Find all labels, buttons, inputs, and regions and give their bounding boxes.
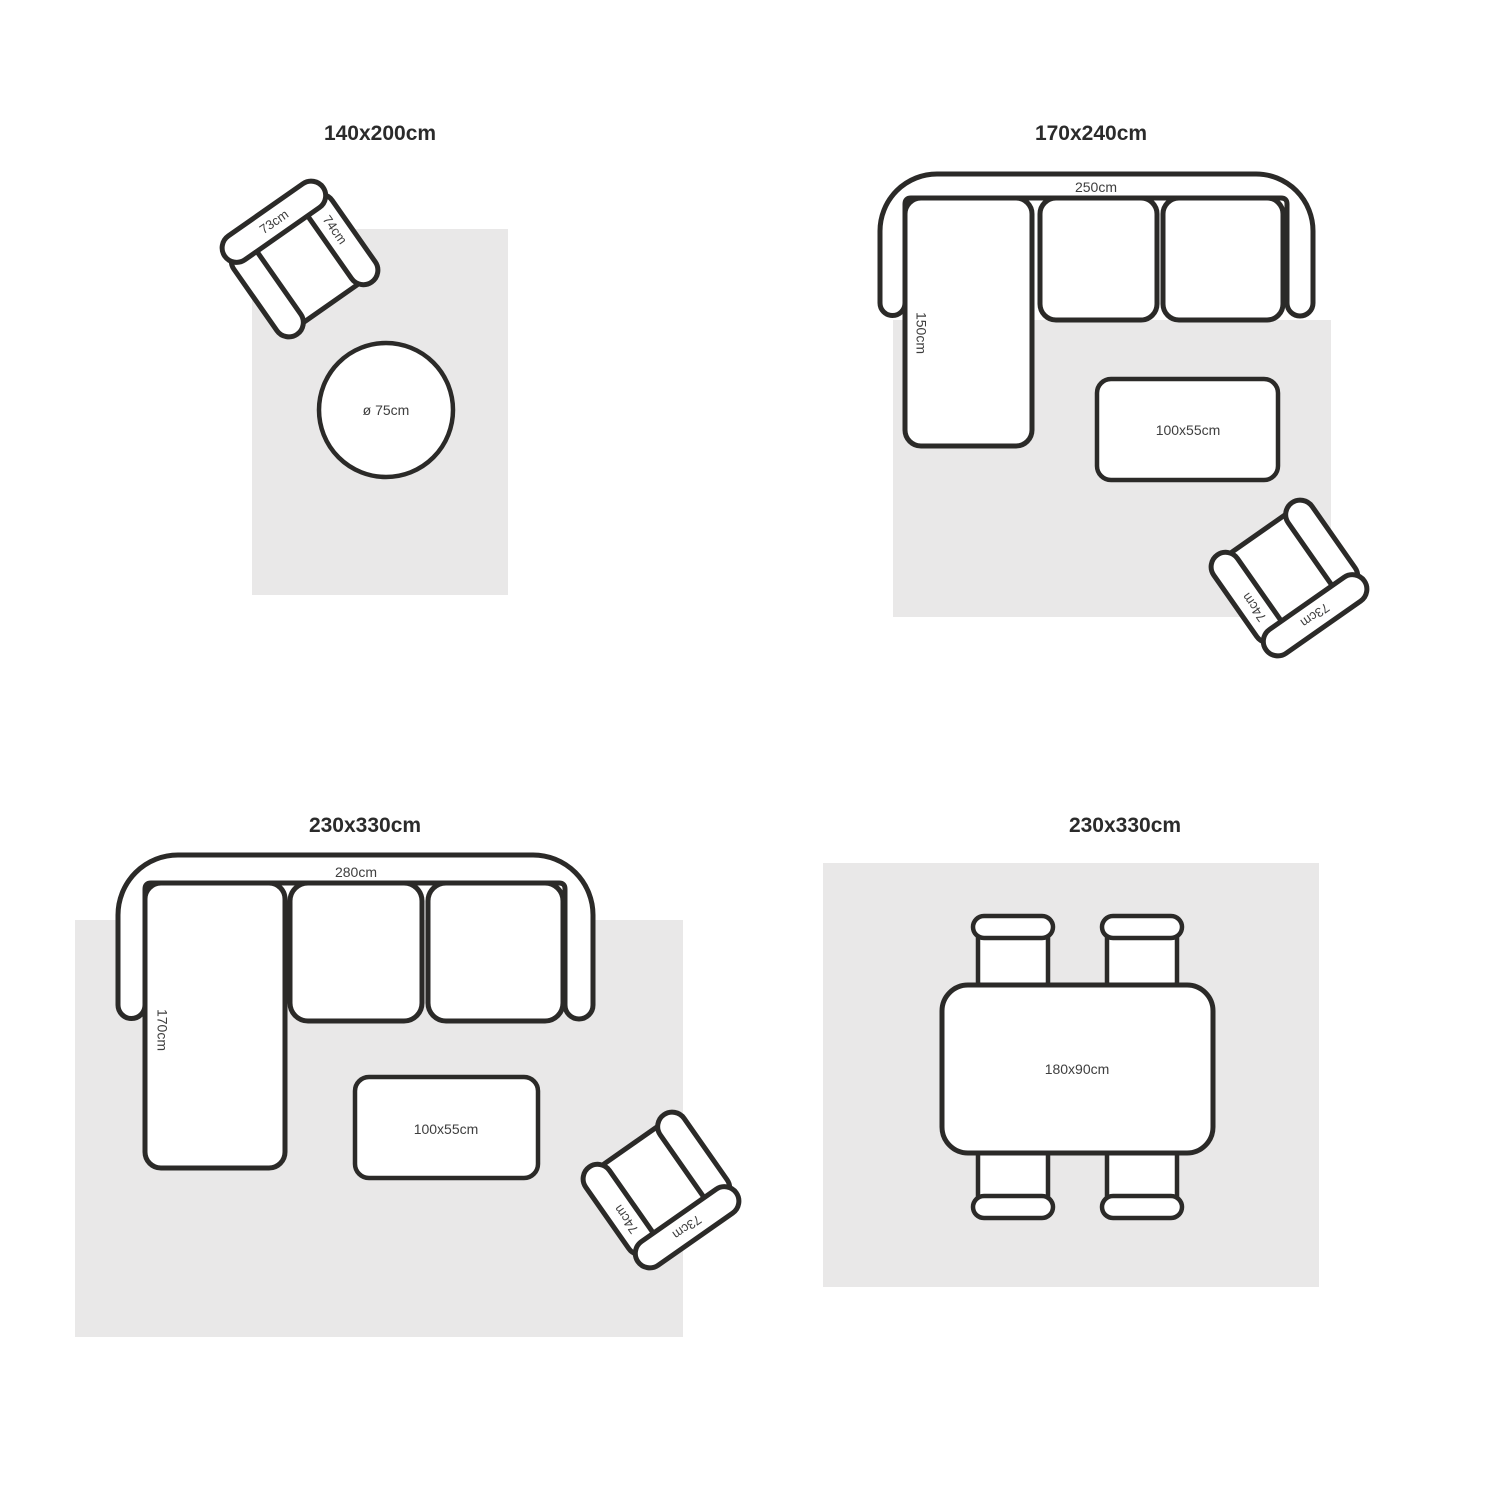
sofa-width-dimension: 280cm — [335, 864, 377, 880]
coffee-table-dimension: 100x55cm — [1156, 422, 1221, 438]
layout-title: 230x330cm — [1069, 814, 1181, 837]
sofa-depth-dimension: 170cm — [155, 1009, 171, 1051]
dining-chair — [1102, 1146, 1182, 1218]
layout-170x240: 170x240cm 100x55cm 250cm 150cm — [880, 122, 1373, 662]
layout-title: 140x200cm — [324, 122, 436, 145]
dining-chair — [1102, 916, 1182, 988]
sofa-cushion — [428, 883, 563, 1021]
sofa-cushion — [1163, 198, 1283, 320]
sofa-width-dimension: 250cm — [1075, 179, 1117, 195]
sofa-cushion — [290, 883, 422, 1021]
rug-size-guide-diagram: 73cm 74cm 140x200cm ø 75cm 170x240cm 100… — [0, 0, 1500, 1500]
sofa-cushion — [1040, 198, 1157, 320]
layout-140x200: 140x200cm ø 75cm — [216, 122, 508, 595]
dining-table-dimension: 180x90cm — [1045, 1061, 1110, 1077]
coffee-table-dimension: 100x55cm — [414, 1121, 479, 1137]
dining-chair — [973, 1146, 1053, 1218]
layout-230x330-sofa: 230x330cm 100x55cm 280cm 170cm — [75, 814, 745, 1337]
layout-title: 230x330cm — [309, 814, 421, 837]
dining-chair — [973, 916, 1053, 988]
rug-size-guide: 73cm 74cm 140x200cm ø 75cm 170x240cm 100… — [0, 0, 1500, 1500]
layout-230x330-dining: 230x330cm 180x90cm — [823, 814, 1319, 1287]
sofa-depth-dimension: 150cm — [914, 312, 930, 354]
layout-title: 170x240cm — [1035, 122, 1147, 145]
round-table-dimension: ø 75cm — [363, 402, 410, 418]
